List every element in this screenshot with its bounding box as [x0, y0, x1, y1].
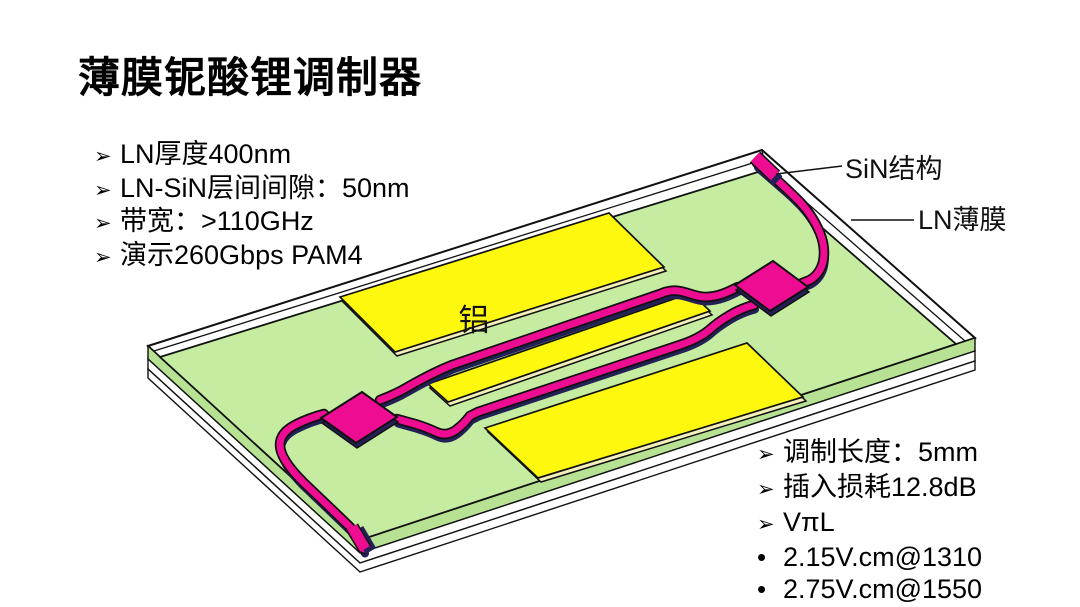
aluminum-label: 铝	[459, 303, 490, 338]
arrow-bullet-icon: ➢	[757, 439, 783, 471]
sin-structure-label: SiN结构	[845, 154, 943, 184]
spec-text: 2.75V.cm@1550	[783, 573, 982, 605]
arrow-bullet-icon: ➢	[757, 509, 783, 541]
slide: 铝 SiN结构 LN薄膜 薄膜铌酸锂调制器 ➢ LN厚度400nm ➢ LN-S…	[0, 0, 1080, 607]
spec-text: LN-SiN层间间隙：50nm	[120, 173, 410, 205]
spec-text: 带宽：>110GHz	[120, 206, 314, 238]
spec-text: 插入损耗12.8dB	[783, 471, 977, 503]
dot-bullet-icon: •	[757, 573, 783, 605]
spec-item: • 2.15V.cm@1310	[757, 541, 982, 573]
arrow-bullet-icon: ➢	[757, 474, 783, 506]
spec-item: ➢ LN厚度400nm	[94, 139, 410, 173]
spec-item: ➢ 演示260Gbps PAM4	[94, 240, 410, 274]
spec-text: 2.15V.cm@1310	[783, 541, 982, 573]
spec-text: 演示260Gbps PAM4	[120, 240, 363, 272]
arrow-bullet-icon: ➢	[94, 208, 120, 240]
spec-item: ➢ 带宽：>110GHz	[94, 206, 410, 240]
spec-item: ➢ VπL	[757, 506, 982, 541]
page-title: 薄膜铌酸锂调制器	[78, 44, 422, 105]
spec-item: ➢ 调制长度：5mm	[757, 436, 982, 471]
specs-list-left: ➢ LN厚度400nm ➢ LN-SiN层间间隙：50nm ➢ 带宽：>110G…	[94, 139, 410, 274]
dot-bullet-icon: •	[757, 541, 783, 573]
spec-item: ➢ LN-SiN层间间隙：50nm	[94, 173, 410, 207]
arrow-bullet-icon: ➢	[94, 175, 120, 207]
spec-item: • 2.75V.cm@1550	[757, 573, 982, 605]
arrow-bullet-icon: ➢	[94, 141, 120, 173]
specs-list-right: ➢ 调制长度：5mm ➢ 插入损耗12.8dB ➢ VπL • 2.15V.cm…	[757, 436, 982, 605]
ln-film-label: LN薄膜	[918, 205, 1007, 235]
arrow-bullet-icon: ➢	[94, 242, 120, 274]
spec-item: ➢ 插入损耗12.8dB	[757, 471, 982, 506]
spec-text: VπL	[783, 506, 835, 538]
spec-text: LN厚度400nm	[120, 139, 291, 171]
spec-text: 调制长度：5mm	[783, 436, 978, 468]
